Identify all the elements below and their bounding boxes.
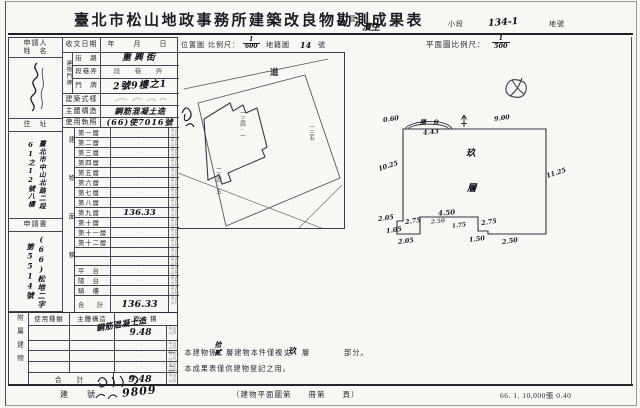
address-value-cell: 臺北市中山北路二段61之12號八樓 (9, 132, 63, 218)
floor-plan-scale-fraction: 1 500 (492, 35, 510, 49)
address-label: 住 址 (24, 121, 48, 128)
floor-area-value: · (111, 276, 168, 285)
site-map-scale-fraction: 1 600 (243, 37, 260, 50)
total-row: 合 計136.33平方公尺 (75, 296, 179, 312)
floor-area-value: · (111, 248, 168, 256)
note-2: 二、本成果表僅供建物登記之用。 (168, 366, 291, 374)
street-value: 重興街 (122, 54, 158, 63)
floor-label: 第五層 (75, 168, 111, 177)
table-row: 第四層·平方公尺 (75, 158, 179, 168)
subsection-label: 小段 (448, 21, 464, 29)
floor-label (75, 257, 111, 265)
annex-type-cell (29, 341, 70, 351)
floor-plan-header: 平面圖比例尺： (426, 41, 486, 49)
address-header-cell: 住 址 (9, 118, 63, 132)
annex-label: 附屬建物 (14, 314, 24, 384)
table-row: 第十層·平方公尺 (75, 218, 179, 228)
floor-area-value: 136.33 (111, 208, 168, 217)
annex-type-cell (29, 351, 70, 361)
application-no-value: (66)松地二字第5514號 (24, 234, 47, 310)
annex-structure-cell (70, 362, 115, 372)
floor-plan-drawing (378, 108, 610, 248)
table-row: 第五層·平方公尺 (75, 168, 179, 178)
unit-label: 平方公尺 (168, 286, 179, 295)
lane-value: 段 巷 弄 (114, 69, 167, 76)
application-label: 申請書 (24, 221, 48, 228)
section-label: 段 (392, 21, 400, 29)
table-row: 第十一層·平方公尺 (75, 228, 179, 238)
street-label: 街 路 (75, 56, 98, 63)
application-no-cell: (66)松地二字第5514號 (9, 232, 63, 312)
floor-label: 第八層 (75, 198, 111, 207)
floor-label: 第一層 (75, 128, 111, 137)
district-label: 區 (349, 16, 357, 24)
total-label: 合 計 (75, 296, 111, 312)
scanned-survey-form: 臺北市松山地政事務所建築改良物勘測成果表 山 區 濱生 段 小段 134-1 地… (0, 0, 640, 408)
annex-header-type: 使用種類 (29, 313, 70, 325)
site-map-scale-label: 比例尺： (208, 42, 240, 50)
floor-label: 第七層 (75, 188, 111, 197)
floor-label: 第十一層 (75, 228, 111, 237)
title-rule (8, 33, 633, 35)
handwritten-signature-scribble (16, 60, 56, 116)
unit-label: 平方公尺 (168, 276, 179, 285)
door-value: 2號9樓之1 (113, 80, 168, 93)
cadastre-label: 地籍圖 (266, 42, 290, 50)
doorplate-group-label-cell: 建物門牌 (63, 53, 73, 94)
door-value-cell: 2號9樓之1 (101, 79, 179, 94)
address-value: 臺北市中山北路二段61之12號八樓 (25, 133, 47, 217)
dim-balcony-width: 4.43 (423, 127, 440, 137)
structure-label: 主體構造 (66, 108, 98, 115)
north-arrow-icon (461, 115, 467, 127)
street-label-cell: 街 路 (73, 53, 101, 66)
floor-area-value: · (111, 266, 168, 275)
table-row: 第三層·平方公尺 (75, 148, 179, 158)
annex-structure-cell (70, 341, 115, 351)
floor-area-value: · (111, 148, 168, 157)
examiner-stamp-scribble (498, 72, 540, 102)
note-1-fill-floors: 拾貳 (214, 341, 222, 357)
doorplate-label: 建物門牌 (65, 54, 71, 93)
lane-label: 段巷弄 (75, 69, 98, 76)
floor-area-value: · (111, 158, 168, 167)
note-1-mid: 層建物本件僅複丈 (226, 350, 292, 358)
parcel-label-e: 一三五 (307, 124, 315, 160)
floor-label: 騎 樓 (75, 286, 111, 295)
table-row: ·平方公尺 (75, 248, 179, 257)
building-area-label-strip: 建物面積 (63, 128, 75, 312)
floor-label: 第十層 (75, 218, 111, 227)
annex-area-value: · (115, 362, 166, 372)
floor-area-value: · (111, 128, 168, 137)
unit-label: 平方公尺 (168, 248, 179, 256)
floor-area-value: · (111, 198, 168, 207)
floor-label: 第十二層 (75, 238, 111, 247)
floor-label: 第二層 (75, 138, 111, 147)
floor-area-value: · (111, 238, 168, 247)
right-border-line (631, 37, 632, 385)
annex-row: · 平方公尺 (29, 351, 177, 362)
cadastre-sheet-no: 14 (300, 40, 311, 50)
receipt-date-label-cell: 收文日期 (63, 38, 101, 53)
scale-denominator: 500 (492, 42, 510, 50)
unit-label: 平方公尺 (168, 296, 179, 312)
table-row: 陽 台·平方公尺 (75, 276, 179, 286)
floor-area-value: · (111, 138, 168, 147)
receipt-date-label: 收文日期 (66, 41, 98, 48)
floor-area-value: · (111, 286, 168, 295)
parcel-label: 地號 (549, 21, 565, 29)
applicant-label-2: 姓 名 (24, 48, 48, 55)
annex-area-value: · (115, 341, 166, 351)
parcel-label-main: 一三四-一 (238, 110, 246, 152)
style-label: 建築式樣 (66, 96, 98, 103)
floor-label: 第四層 (75, 158, 111, 167)
license-value-cell: (66)使7016號 (101, 118, 179, 128)
site-map-label: 位置圖 (181, 42, 205, 50)
district-value: 山 (337, 17, 345, 28)
floor-label: 第六層 (75, 178, 111, 187)
table-row: ·平方公尺 (75, 257, 179, 266)
road-label: 道 (270, 66, 279, 78)
note-1-fill-surveyed: 玖 (288, 345, 297, 357)
annex-type-cell (29, 362, 70, 372)
applicant-header-cell: 申請人 姓 名 (9, 38, 63, 58)
application-header-cell: 申請書 (9, 218, 63, 232)
lane-value-cell: 段 巷 弄 (101, 66, 179, 79)
license-label: 使用執照 (66, 119, 98, 126)
faint-pencil-scribble (112, 95, 168, 104)
print-info: 66. 1. 10,000張 0.40 (500, 390, 571, 401)
dim-b3: 2.05 (398, 236, 415, 246)
floor-label: 第三層 (75, 148, 111, 157)
floor-plan-floor-char-1: 玖 (466, 145, 476, 159)
floor-label: 第九層 (75, 208, 111, 217)
note-1-prefix: 一、本建物係 (168, 350, 217, 358)
parcel-label-sw: 一三四-五 (214, 166, 222, 212)
table-row: 騎 樓·平方公尺 (75, 286, 179, 296)
license-label-cell: 使用執照 (63, 118, 101, 128)
annex-label-strip: 附屬建物 (9, 313, 29, 385)
floor-area-table: 第一層·平方公尺 第二層·平方公尺 第三層·平方公尺 第四層·平方公尺 第五層·… (75, 128, 179, 312)
structure-value: 鋼筋混凝土造 (115, 107, 166, 115)
license-value: (66)使7016號 (107, 118, 174, 126)
survey-form-table: 申請人 姓 名 住 址 臺北市中山北路二段61之12號八樓 申請書 (66)松地… (8, 37, 178, 385)
section-value: 濱生 (362, 20, 380, 33)
floor-area-value: · (111, 218, 168, 227)
floor-area-value: · (111, 168, 168, 177)
building-area-label: 建物面積 (65, 128, 75, 318)
style-value-cell (101, 94, 179, 106)
floor-plan-floor-char-2: 層 (467, 180, 477, 194)
dim-b9: 1.50 (469, 234, 486, 244)
site-map-box (178, 52, 345, 229)
table-row: 第八層·平方公尺 (75, 198, 179, 208)
applicant-signature-cell (9, 58, 63, 118)
map-corner-scribble (182, 108, 194, 127)
note-1-suffix: 部分。 (344, 350, 369, 358)
table-row: 第七層·平方公尺 (75, 188, 179, 198)
receipt-date-value-cell: 年 月 日 (101, 38, 179, 53)
unit-label: 平方公尺 (168, 238, 179, 247)
scale-denominator: 600 (243, 43, 260, 50)
floor-label: 平 台 (75, 266, 111, 275)
annex-structure-cell (70, 351, 115, 361)
cadastre-sheet-label: 號 (318, 42, 326, 50)
style-label-cell: 建築式樣 (63, 94, 101, 106)
floor-area-value: · (111, 257, 168, 265)
receipt-date-value: 年 月 日 (108, 41, 173, 48)
floor-label (75, 248, 111, 256)
lane-label-cell: 段巷弄 (73, 66, 101, 79)
table-row: 平 台·平方公尺 (75, 266, 179, 276)
structure-label-cell: 主體構造 (63, 106, 101, 118)
unit-label: 平方公尺 (166, 326, 177, 340)
floor-area-value: · (111, 228, 168, 237)
annex-area-value: · (115, 351, 166, 361)
floor-area-value: · (111, 188, 168, 197)
note-1-floor-word: 層 (302, 350, 310, 358)
balcony-label: 陽台 (420, 117, 446, 126)
plan-page-note: （建物平面圖第 冊第 頁） (232, 391, 360, 399)
table-row: 第十二層·平方公尺 (75, 238, 179, 248)
total-area-value: 136.33 (111, 296, 168, 312)
unit-label: 平方公尺 (168, 266, 179, 275)
street-value-cell: 重興街 (101, 53, 179, 66)
dim-b5: 4.50 (438, 207, 456, 217)
table-row: 第一層·平方公尺 (75, 128, 179, 138)
site-map-drawing (178, 53, 343, 228)
parcel-number-value: 134-1 (488, 16, 519, 29)
floor-label: 陽 台 (75, 276, 111, 285)
door-label-cell: 門 牌 (73, 79, 101, 94)
table-row: 第六層·平方公尺 (75, 178, 179, 188)
table-row: 第二層·平方公尺 (75, 138, 179, 148)
door-label: 門 牌 (75, 83, 98, 90)
floor-area-value: · (111, 178, 168, 187)
structure-value-cell: 鋼筋混凝土造 (101, 106, 179, 118)
unit-label: 平方公尺 (168, 257, 179, 265)
table-row: 第九層136.33平方公尺 (75, 208, 179, 218)
annex-row: · 平方公尺 (29, 341, 177, 352)
annex-type-cell (29, 326, 70, 340)
